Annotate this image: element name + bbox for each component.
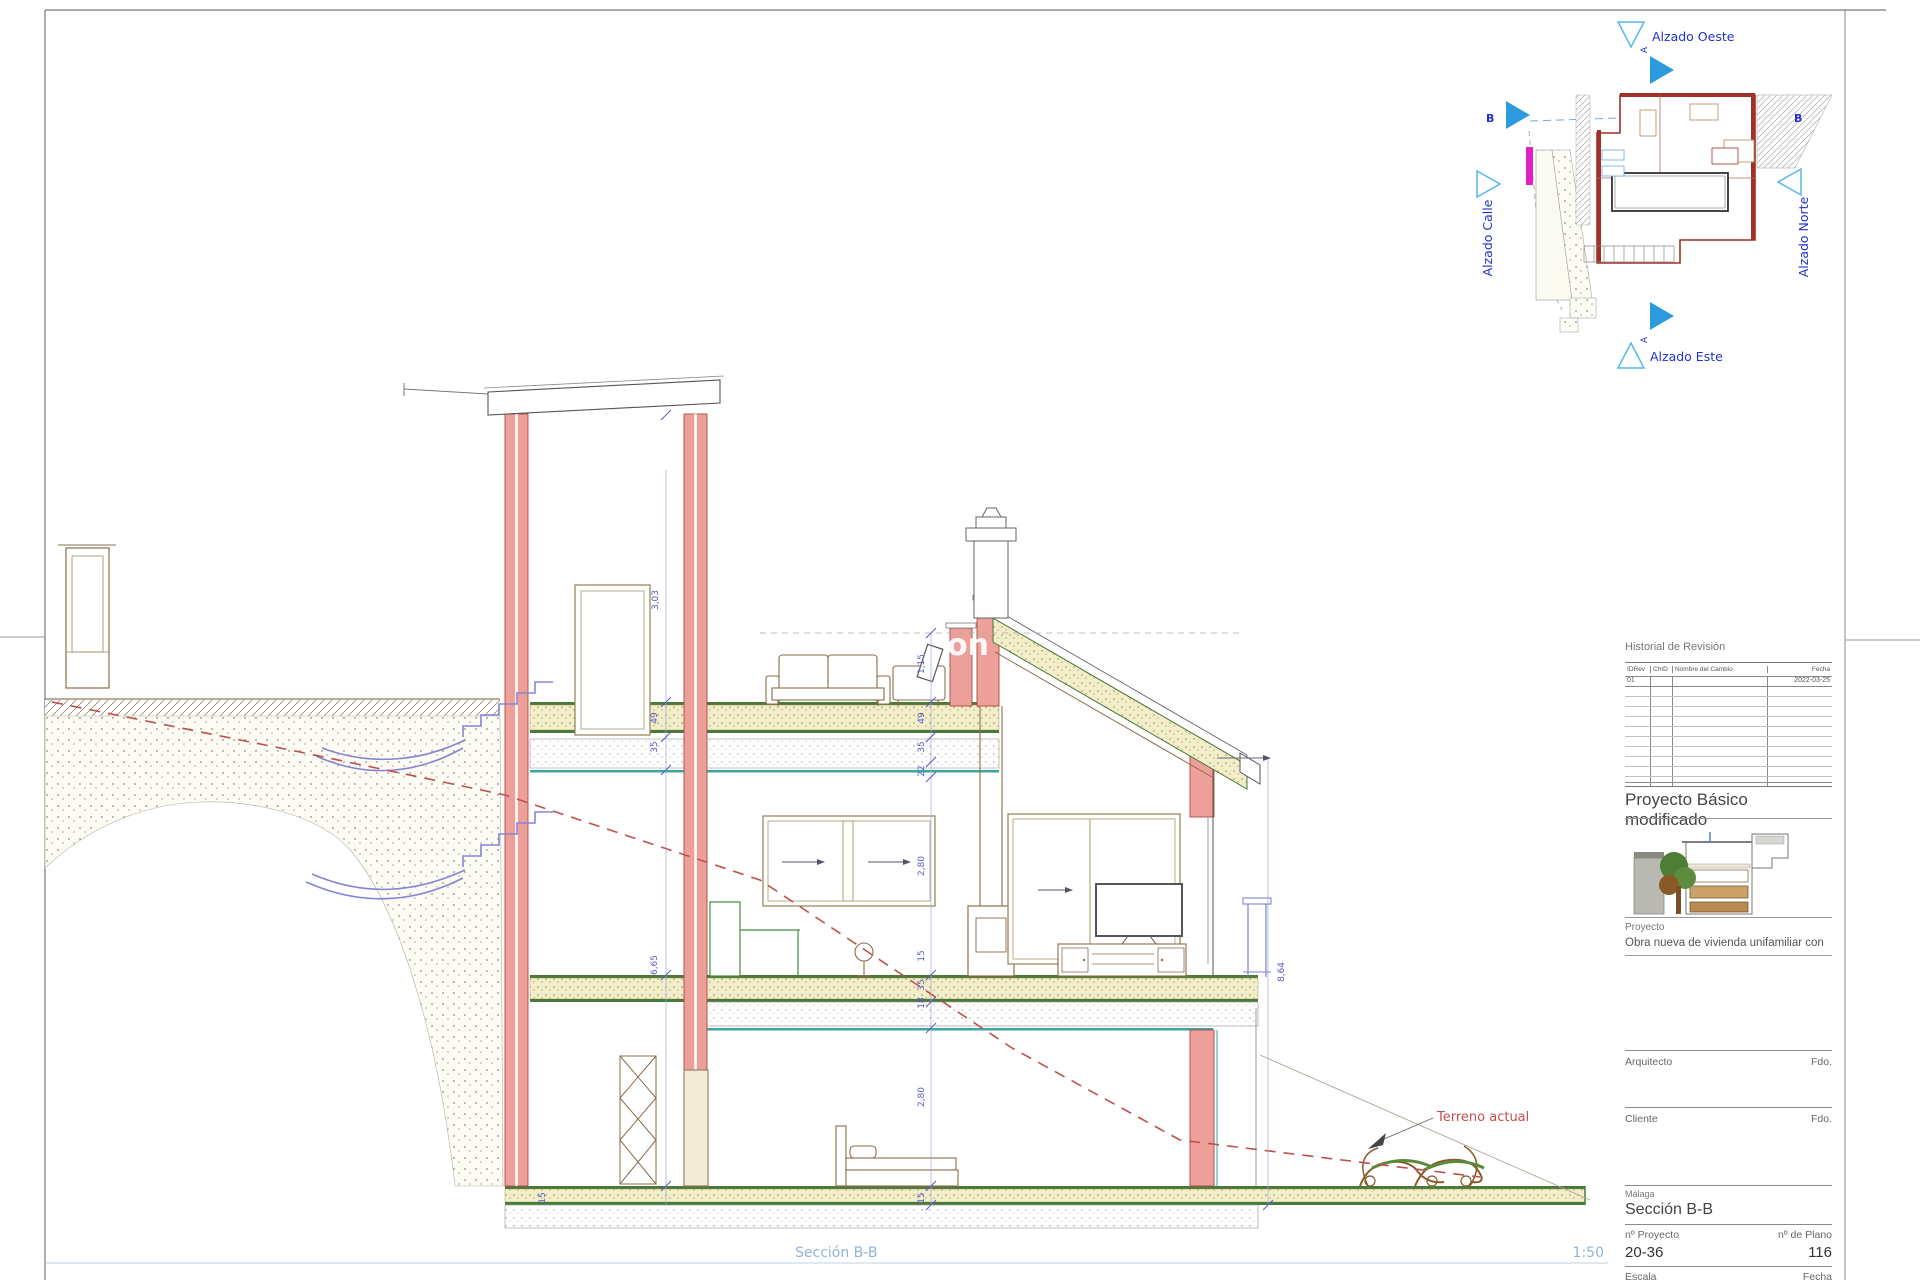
dim-center-4: 22 [917,765,927,776]
client-row: Cliente Fdo. [1625,1113,1832,1125]
watermark-fragment: on [947,628,989,663]
dim-center-8: 18 [917,997,927,1009]
dim-center-1: 1,15 [917,654,927,674]
numbers-label-row: nº Proyecto nº de Plano [1625,1229,1832,1241]
client-label: Cliente [1625,1113,1658,1125]
dim-left-2: 49 [650,712,660,724]
tower-window [575,585,650,735]
revision-row-id: 01 [1625,677,1651,686]
chaise-lounges [1360,1146,1484,1186]
revision-col-nombre: Nombre del Cambio [1673,666,1768,673]
section-letter-b-right: B [1794,112,1802,125]
scale-note: 1:50 [1573,1245,1604,1261]
dim-bottom: 15 [538,1192,548,1203]
wardrobe-door [620,1056,656,1184]
dim-left-1: 3,03 [651,590,661,610]
project-name: Obra nueva de vivienda unifamiliar con [1625,937,1832,949]
divider [1625,1050,1832,1051]
drawing-sheet: 3,03 49 35 6,65 15 1,15 49 35 22 2,80 15… [0,0,1920,1280]
terrain [45,699,503,1186]
dim-center-2: 49 [917,712,927,724]
city-label: Málaga [1625,1189,1832,1199]
section-letter-b-left: B [1486,112,1494,125]
dim-right: 8,64 [1277,962,1287,982]
revision-col-idrev: IDRev [1625,666,1651,673]
label-alzado-calle: Alzado Calle [1480,199,1495,276]
chimney [966,508,1016,618]
dim-left-3: 35 [650,741,660,752]
dim-center-7: 35 [917,979,927,990]
divider [1625,1107,1832,1108]
plan-no-label: nº de Plano [1778,1229,1832,1241]
elevation-marker-street [1477,171,1500,197]
stool [855,943,873,976]
divider [1625,1266,1832,1267]
project-type-title: Proyecto Básico modificado [1625,790,1832,830]
divider [1625,782,1832,783]
project-no-value: 20-36 [1625,1244,1663,1261]
mini-floor-plan [1526,93,1832,332]
revision-col-chid: ChID [1651,666,1673,673]
section-letter-a-top: A [1640,46,1650,53]
scale-date-row: Escala Fecha [1625,1271,1832,1280]
dim-center-5: 2,80 [917,856,927,876]
divider [1625,1185,1832,1186]
dim-center-6: 15 [917,950,927,961]
scale-label: Escala [1625,1271,1657,1280]
section-arrow-a-top [1650,56,1674,84]
plan-key: Alzado Oeste Alzado Este Alzado Calle Al… [1477,22,1832,368]
terrain-leader [1368,1118,1433,1149]
label-alzado-este: Alzado Este [1650,349,1723,364]
plan-no-value: 116 [1808,1244,1832,1261]
project-thumbnail [1632,828,1790,916]
revision-history-title: Historial de Revisión [1625,641,1832,653]
elevation-marker-east [1618,343,1644,368]
revision-row-date: 2022-03-25 [1768,677,1832,686]
balcony-railing [1243,898,1271,1186]
elevation-marker-west [1618,22,1644,47]
divider [1625,955,1832,956]
client-sign-label: Fdo. [1811,1113,1832,1125]
dim-center-10: 15 [917,1192,927,1203]
upper-floor-slab [530,975,1258,1031]
section-arrow-b-left [1506,101,1530,129]
project-no-label: nº Proyecto [1625,1229,1679,1241]
elevation-marker-north [1778,169,1801,195]
dim-left-4: 6,65 [650,955,660,975]
section-cut-highlight [1526,147,1533,185]
tower-roof-cap [404,376,724,415]
desk-unit [710,902,800,976]
revision-table-header: IDRev ChID Nombre del Cambio Fecha [1625,663,1832,677]
architect-row: Arquitecto Fdo. [1625,1056,1832,1068]
street-wall-section [58,545,116,688]
revision-table: IDRev ChID Nombre del Cambio Fecha 01 20… [1625,662,1832,787]
label-alzado-norte: Alzado Norte [1796,196,1811,277]
drawing-caption: Sección B-B [795,1245,877,1261]
numbers-value-row: 20-36 116 [1625,1244,1832,1261]
divider [1625,1224,1832,1225]
project-label: Proyecto [1625,922,1832,933]
section-walls [505,414,1217,1186]
architect-sign-label: Fdo. [1811,1056,1832,1068]
section-arrow-a-bottom [1650,302,1674,330]
divider [1625,818,1832,819]
architect-label: Arquitecto [1625,1056,1672,1068]
upper-window-double [763,816,935,906]
revision-row-1: 01 2022-03-25 [1625,677,1832,687]
section-letter-a-bottom: A [1640,336,1650,343]
bed [836,1126,958,1186]
date-label: Fecha [1803,1271,1832,1280]
ground-floor-slab [505,1186,1585,1228]
main-roof [993,608,1260,789]
dim-center-3: 35 [917,741,927,752]
terrace-sofa [766,655,890,706]
divider [1625,917,1832,918]
revision-col-fecha: Fecha [1768,666,1832,673]
terrain-label: Terreno actual [1436,1110,1529,1125]
dim-center-9: 2,80 [917,1087,927,1107]
section-drawing: 3,03 49 35 6,65 15 1,15 49 35 22 2,80 15… [0,0,1920,1280]
label-alzado-oeste: Alzado Oeste [1652,29,1735,44]
sheet-title: Sección B-B [1625,1201,1832,1219]
